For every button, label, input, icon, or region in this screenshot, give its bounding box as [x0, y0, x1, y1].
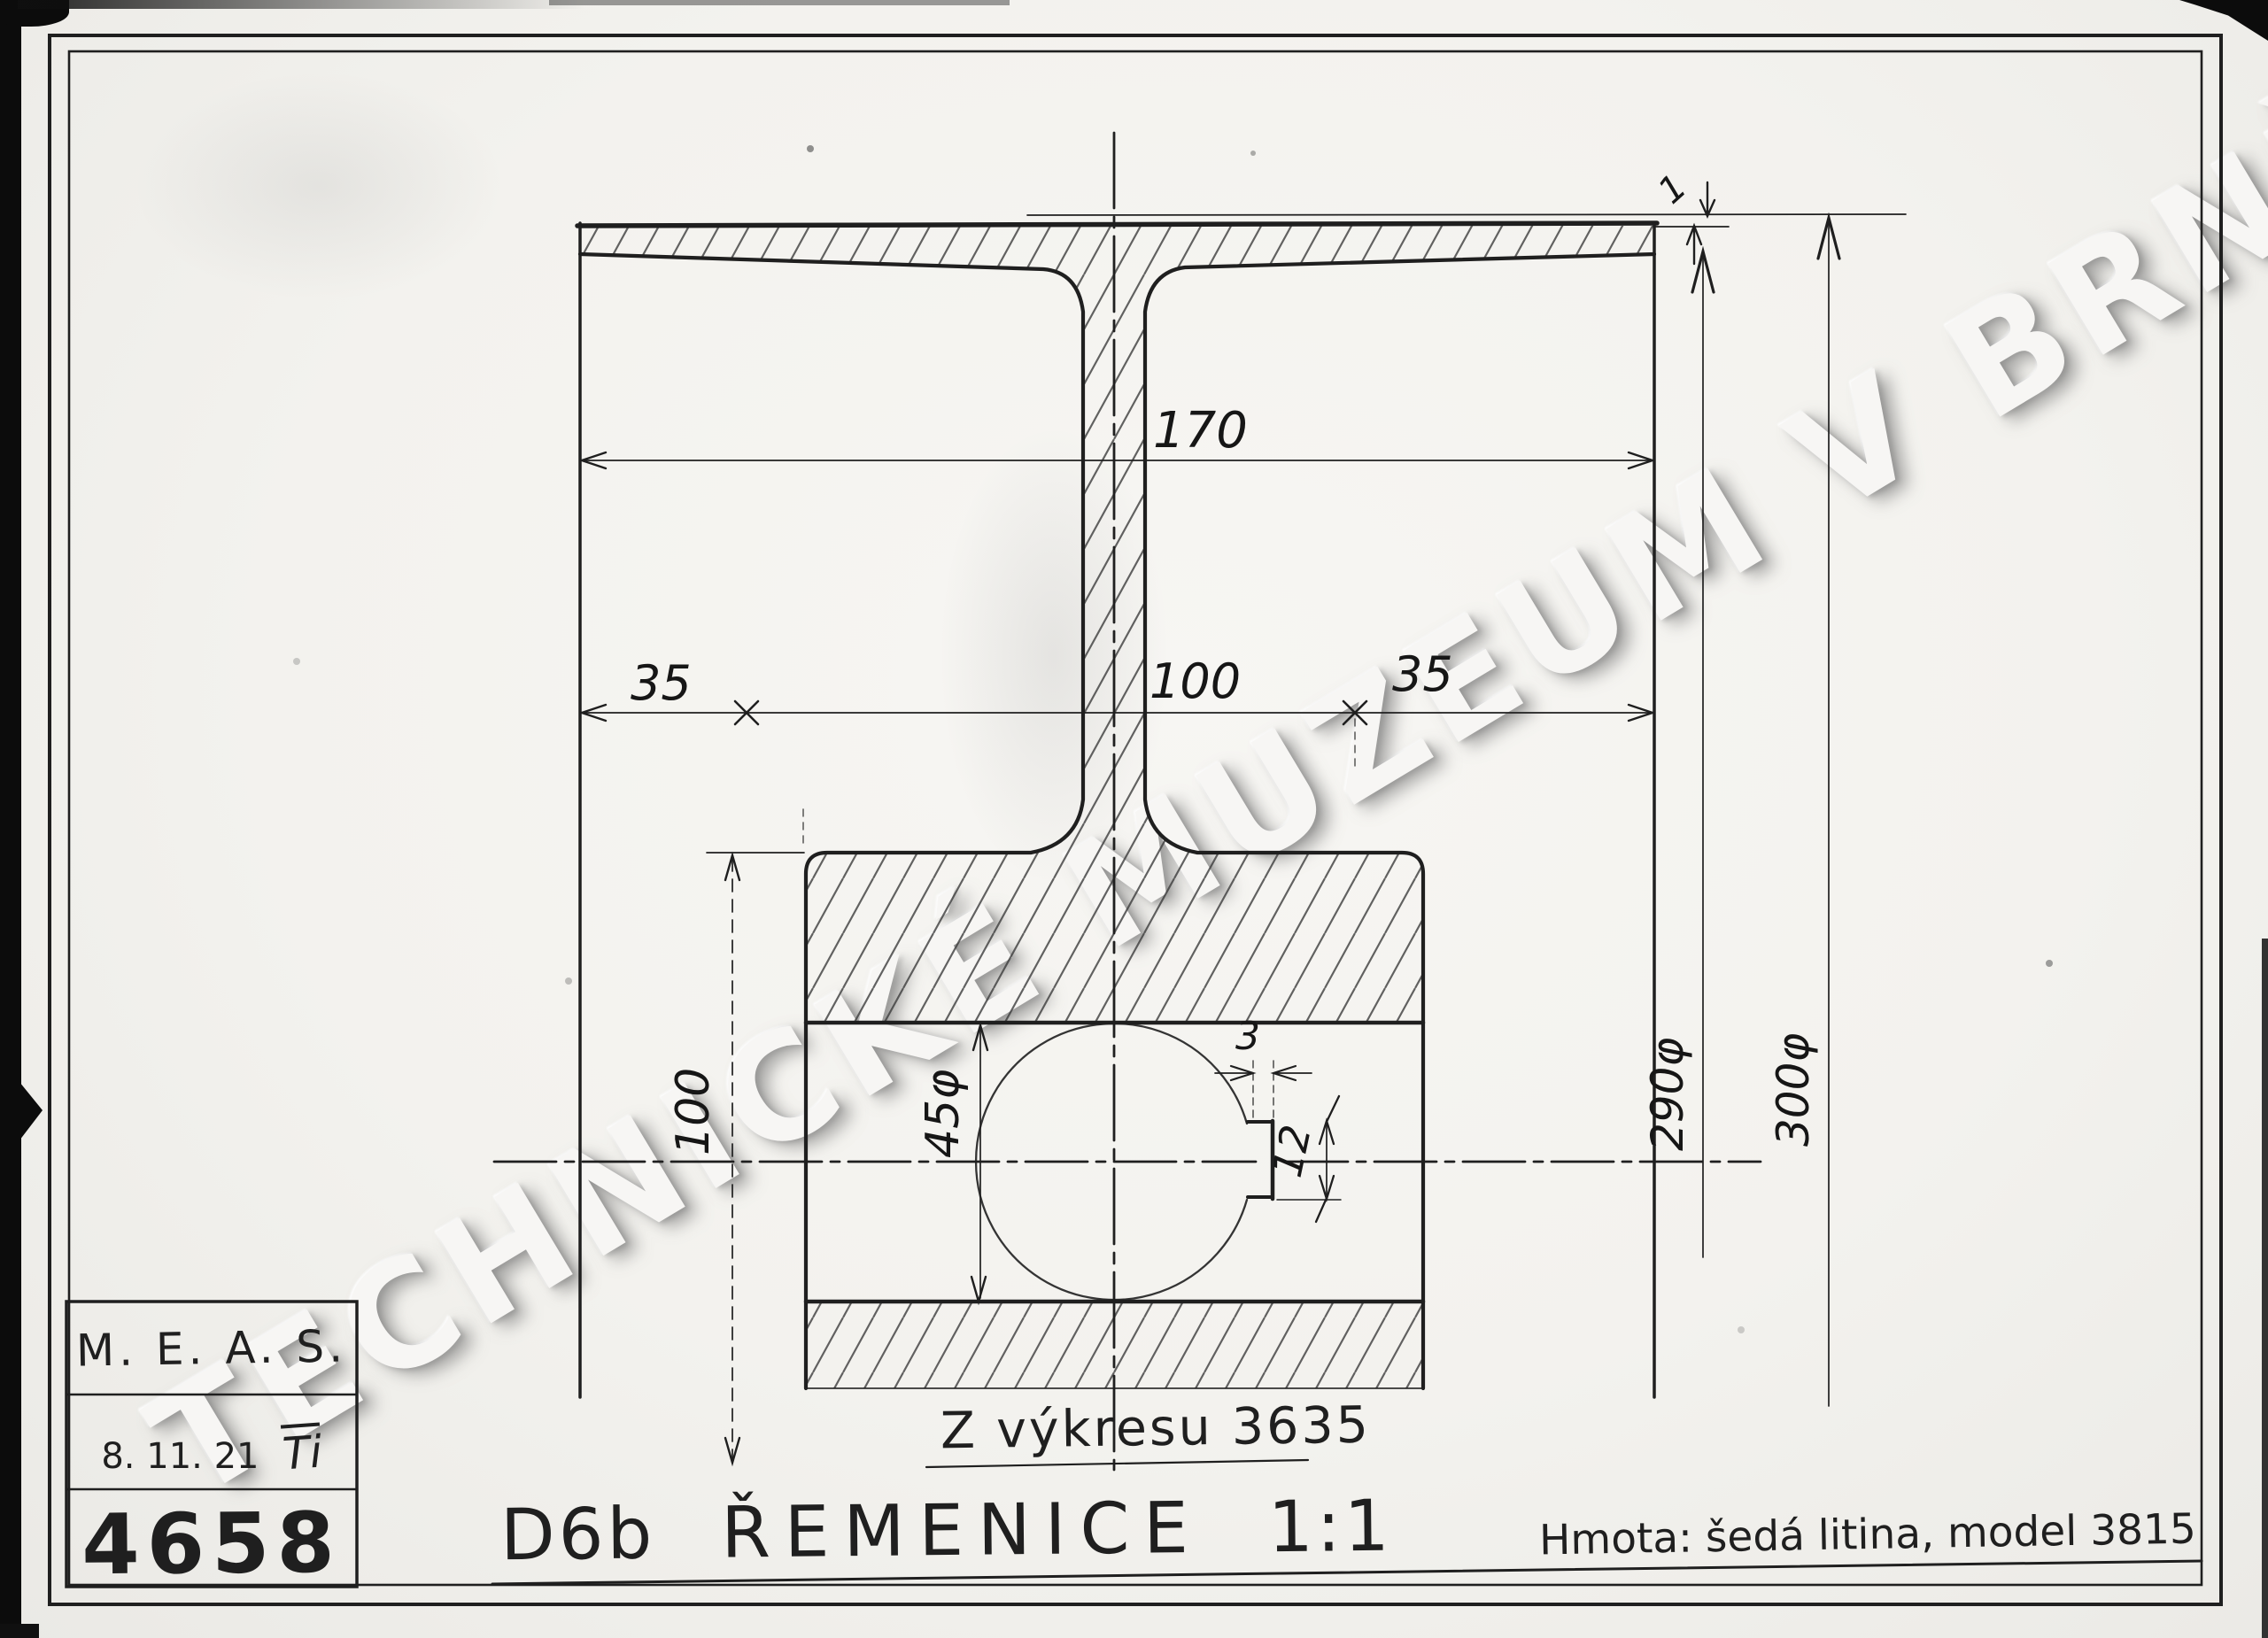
- scan-edge-top2: [549, 0, 1010, 5]
- dim-rim-width: 170: [1153, 402, 1248, 460]
- scan-edge-top: [18, 0, 584, 9]
- title-block-company: M. E. A. S.: [66, 1320, 358, 1377]
- scan-edge-notch: [19, 1082, 43, 1140]
- drawing-scale: 1:1: [1267, 1485, 1393, 1568]
- dim-inner-diameter: 290φ: [1642, 1038, 1693, 1151]
- part-name: ŘEMENICE: [721, 1487, 1203, 1574]
- dim-keyway-depth: 12: [1263, 1121, 1320, 1181]
- scan-edge-right: [2262, 939, 2268, 1638]
- drawing-sheet: TECHNICKÉ MUZEUM V BRNĚ: [0, 0, 2268, 1638]
- dim-bore-diameter: 45φ: [917, 1070, 970, 1158]
- dim-290-group: 290φ: [1642, 251, 1714, 1257]
- title-block-initials: Ti: [281, 1423, 324, 1480]
- dim-left-offset: 35: [631, 655, 692, 711]
- dim-center-width: 100: [1149, 653, 1241, 709]
- note-underline: [926, 1460, 1308, 1467]
- reference-note: Z výkresu 3635: [940, 1396, 1372, 1461]
- dim-100-hub-group: 100: [667, 853, 804, 1463]
- dim-300-group: 300φ: [1768, 218, 1839, 1406]
- drawing-linework: 1 170 35 100 35 100: [0, 0, 2268, 1638]
- part-code: D6b: [500, 1492, 656, 1576]
- scan-edge-bottomleft: [0, 1624, 39, 1638]
- dim-hub-diameter: 100: [667, 1068, 720, 1155]
- dim-keyway-depth-group: 12: [1263, 1096, 1341, 1222]
- dim-crown: 1: [1651, 166, 1695, 212]
- title-block-date-row: 8. 11. 21 Ti: [66, 1424, 357, 1479]
- dim-outer-diameter: 300φ: [1768, 1033, 1819, 1147]
- title-block-drawing-number: 4658: [66, 1495, 358, 1595]
- dim-keyway-width: 3: [1235, 1014, 1260, 1059]
- dim-keyway-width-group: 3: [1215, 1014, 1312, 1117]
- dim-right-offset: 35: [1392, 646, 1453, 702]
- title-block-date: 8. 11. 21: [101, 1436, 259, 1477]
- section-hatching: [580, 226, 1654, 1388]
- scan-edge-left: [0, 0, 21, 1638]
- drawing-title: D6b ŘEMENICE 1:1: [500, 1485, 1393, 1577]
